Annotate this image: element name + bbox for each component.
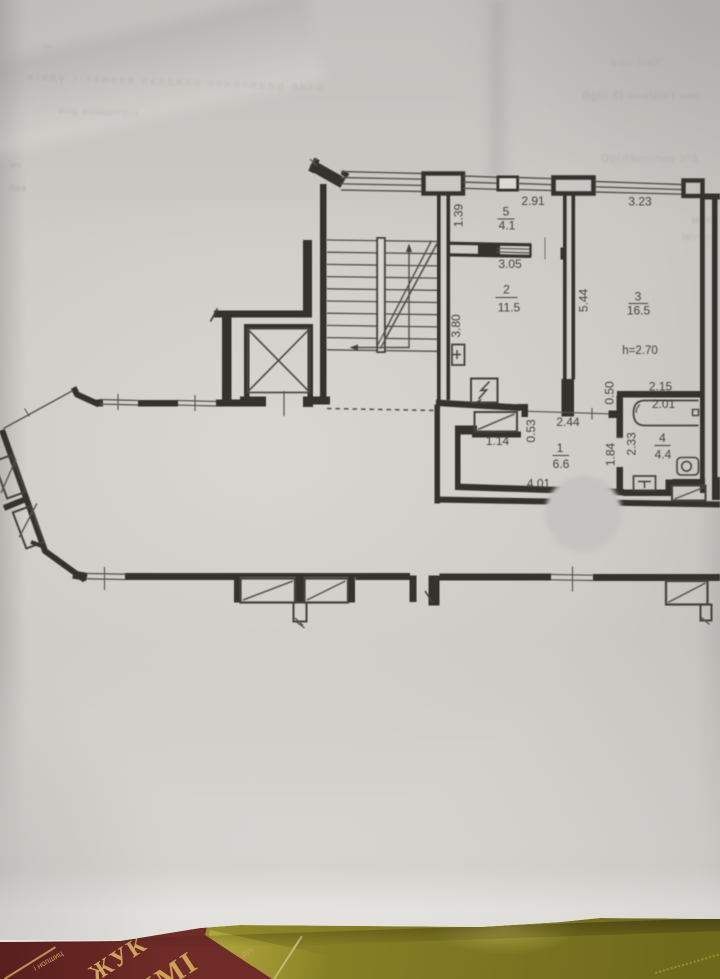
svg-text:2.44: 2.44 bbox=[556, 415, 580, 429]
svg-text:2: 2 bbox=[503, 283, 510, 297]
svg-text:11.5: 11.5 bbox=[498, 301, 521, 315]
svg-text:h=2.70: h=2.70 bbox=[622, 345, 658, 357]
svg-text:5: 5 bbox=[503, 205, 510, 219]
svg-text:3: 3 bbox=[635, 290, 642, 304]
svg-text:2.91: 2.91 bbox=[521, 194, 545, 208]
svg-text:2.33: 2.33 bbox=[625, 432, 639, 456]
svg-text:3.80: 3.80 bbox=[449, 314, 463, 338]
svg-text:4.1: 4.1 bbox=[499, 219, 516, 233]
svg-text:16.5: 16.5 bbox=[627, 304, 651, 318]
svg-text:2.01: 2.01 bbox=[652, 397, 676, 411]
svg-text:1.14: 1.14 bbox=[486, 434, 510, 448]
svg-text:4.4: 4.4 bbox=[655, 448, 672, 462]
svg-text:6.6: 6.6 bbox=[553, 457, 570, 471]
svg-text:0.50: 0.50 bbox=[603, 381, 617, 405]
svg-text:1.39: 1.39 bbox=[452, 203, 466, 227]
svg-text:2.15: 2.15 bbox=[649, 380, 673, 394]
svg-text:3.23: 3.23 bbox=[628, 195, 652, 209]
svg-text:3.05: 3.05 bbox=[498, 257, 522, 271]
svg-text:4.01: 4.01 bbox=[527, 477, 551, 491]
svg-text:1.84: 1.84 bbox=[604, 442, 618, 466]
svg-text:4: 4 bbox=[659, 431, 666, 445]
svg-text:0.53: 0.53 bbox=[524, 419, 538, 443]
svg-text:5.44: 5.44 bbox=[577, 288, 591, 312]
svg-text:1: 1 bbox=[557, 441, 564, 455]
